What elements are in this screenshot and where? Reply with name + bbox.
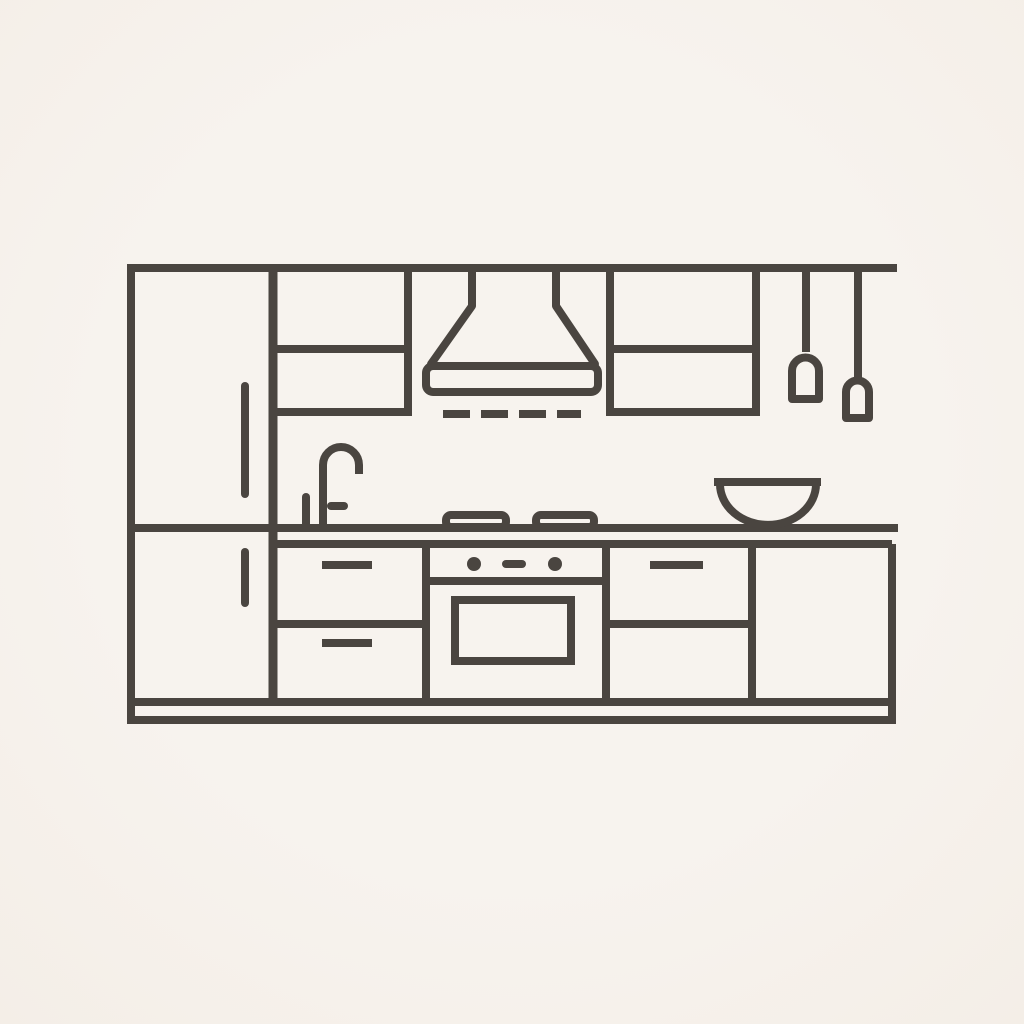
countertop bbox=[127, 528, 898, 544]
refrigerator bbox=[131, 264, 273, 724]
hood-base bbox=[426, 366, 598, 392]
utensil-head bbox=[846, 381, 869, 419]
utensil-head bbox=[792, 358, 819, 400]
range-hood bbox=[426, 268, 598, 414]
upper-cabinet-left bbox=[269, 268, 412, 412]
mixing-bowl bbox=[714, 482, 821, 525]
bowl-body bbox=[720, 484, 816, 525]
faucet bbox=[306, 447, 359, 530]
kitchen-line-illustration bbox=[0, 0, 1024, 1024]
burner-left bbox=[446, 515, 506, 527]
hanging-utensil-right bbox=[846, 268, 869, 418]
illustration-canvas bbox=[0, 0, 1024, 1024]
hood-chimney bbox=[431, 268, 472, 364]
drawer-stack-right bbox=[606, 565, 752, 624]
oven-door bbox=[455, 600, 571, 661]
hanging-utensil-left bbox=[792, 268, 819, 399]
upper-cabinet-right bbox=[606, 268, 760, 412]
oven bbox=[426, 557, 606, 661]
drawer-stack-left bbox=[273, 565, 426, 643]
oven-knob bbox=[467, 557, 481, 571]
burner-right bbox=[536, 515, 594, 527]
faucet-spout bbox=[323, 447, 359, 530]
oven-knob bbox=[548, 557, 562, 571]
